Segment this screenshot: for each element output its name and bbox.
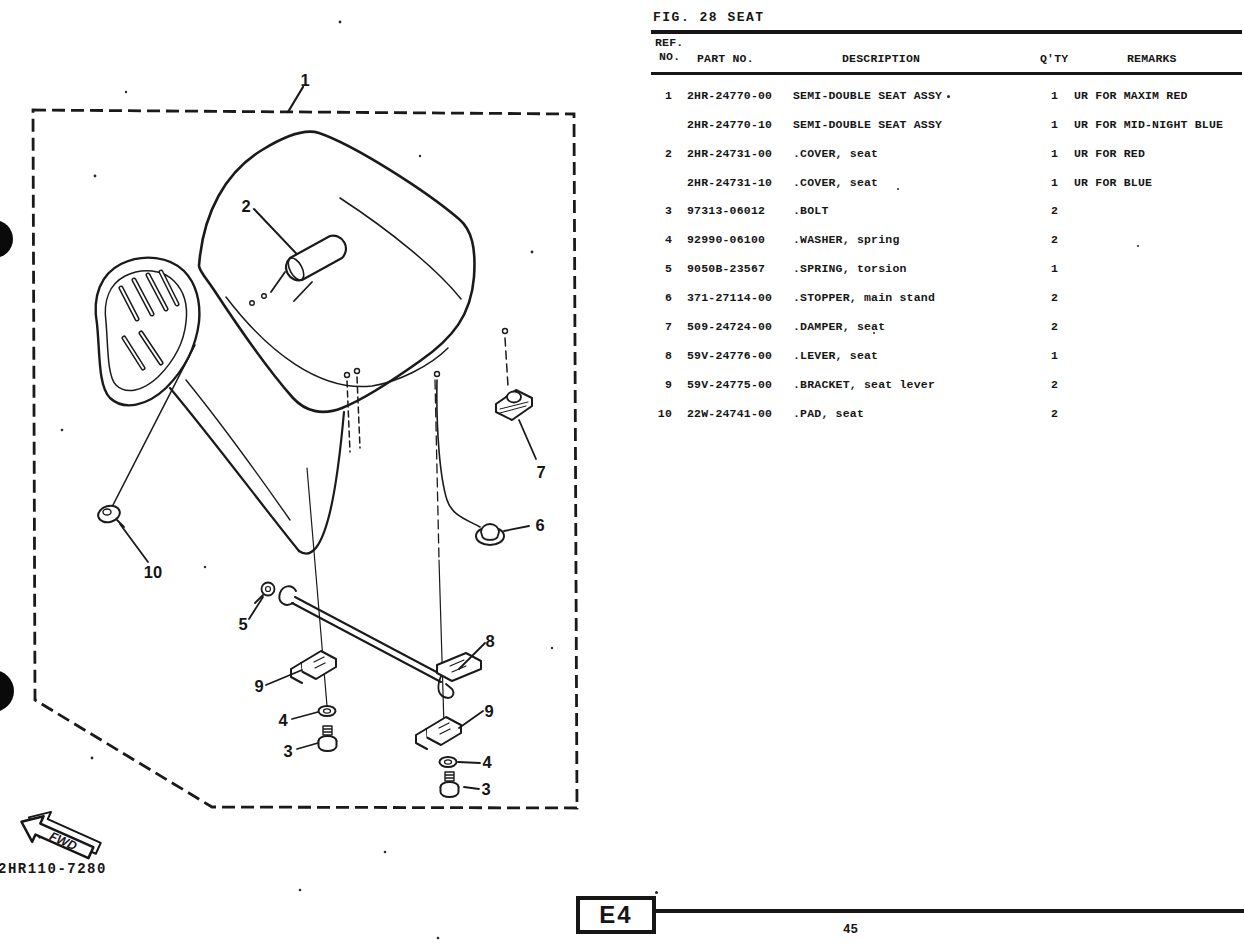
table-row: 4 92990-06100 .WASHER, spring 2 xyxy=(0,233,1244,247)
callout-9-left: 9 xyxy=(254,677,263,695)
cell-ref: 6 xyxy=(650,291,672,304)
table-row: 7 509-24724-00 .DAMPER, seat 2 xyxy=(0,320,1244,334)
callout-9-right: 9 xyxy=(484,702,493,720)
cell-part-no: 2HR-24770-10 xyxy=(687,118,772,131)
cell-qty: 2 xyxy=(1040,320,1058,333)
cell-ref: 10 xyxy=(650,407,672,420)
cell-part-no: 97313-06012 xyxy=(687,204,765,217)
cell-part-no: 59V-24775-00 xyxy=(687,378,772,391)
exploded-diagram: 1 2 7 6 10 5 8 9 4 3 9 4 3 FWD xyxy=(0,0,640,947)
cell-ref: 2 xyxy=(650,147,672,160)
table-top-rule xyxy=(651,30,1242,34)
col-header-part-no: PART NO. xyxy=(697,52,754,65)
cell-part-no: 92990-06100 xyxy=(687,233,765,246)
cell-description: .PAD, seat xyxy=(793,407,864,420)
table-row: 5 9050B-23567 .SPRING, torsion 1 xyxy=(0,262,1244,276)
cell-description: .COVER, seat xyxy=(793,176,878,189)
cell-part-no: 2HR-24731-00 xyxy=(687,147,772,160)
callout-3-right: 3 xyxy=(481,780,490,798)
col-header-description: DESCRIPTION xyxy=(842,52,920,65)
cell-ref: 7 xyxy=(650,320,672,333)
callout-7: 7 xyxy=(536,463,545,481)
cell-part-no: 59V-24776-00 xyxy=(687,349,772,362)
cell-description: .STOPPER, main stand xyxy=(793,291,935,304)
scan-speck xyxy=(873,332,875,334)
cell-description: .DAMPER, seat xyxy=(793,320,885,333)
callout-4-right: 4 xyxy=(482,753,492,771)
cell-qty: 1 xyxy=(1040,349,1058,362)
table-row: 10 22W-24741-00 .PAD, seat 2 xyxy=(0,407,1244,421)
cell-part-no: 2HR-24770-00 xyxy=(687,89,772,102)
table-row: 2HR-24770-10 SEMI-DOUBLE SEAT ASSY 1 UR … xyxy=(0,118,1244,132)
table-row: 3 97313-06012 .BOLT 2 xyxy=(0,204,1244,218)
drawing-number: 2HR110-7280 xyxy=(0,861,107,877)
cell-description: .BRACKET, seat lever xyxy=(793,378,935,391)
callout-10: 10 xyxy=(144,563,162,581)
cell-ref: 3 xyxy=(650,204,672,217)
table-header-rule xyxy=(651,72,1242,75)
cell-remarks: UR FOR BLUE xyxy=(1074,176,1152,189)
section-code-box: E4 xyxy=(576,896,656,934)
scan-speck xyxy=(897,188,899,190)
cell-qty: 2 xyxy=(1040,291,1058,304)
cell-ref: 9 xyxy=(650,378,672,391)
footer-rule xyxy=(656,909,1244,913)
cell-remarks: UR FOR MID-NIGHT BLUE xyxy=(1074,118,1223,131)
cell-ref: 1 xyxy=(650,89,672,102)
cell-description: .WASHER, spring xyxy=(793,233,900,246)
cell-ref: 8 xyxy=(650,349,672,362)
table-row: 1 2HR-24770-00 SEMI-DOUBLE SEAT ASSY 1 U… xyxy=(0,89,1244,103)
cell-description: .COVER, seat xyxy=(793,147,878,160)
callout-8: 8 xyxy=(485,632,494,650)
cell-description: SEMI-DOUBLE SEAT ASSY xyxy=(793,118,942,131)
figure-title: FIG. 28 SEAT xyxy=(653,10,765,25)
cell-part-no: 2HR-24731-10 xyxy=(687,176,772,189)
seat-line-art xyxy=(96,87,536,797)
binder-hole-mark-bottom xyxy=(0,670,14,712)
cell-part-no: 22W-24741-00 xyxy=(687,407,772,420)
table-row: 6 371-27114-00 .STOPPER, main stand 2 xyxy=(0,291,1244,305)
cell-qty: 1 xyxy=(1040,176,1058,189)
scan-speck xyxy=(947,95,950,98)
cell-qty: 1 xyxy=(1040,262,1058,275)
cell-description: .LEVER, seat xyxy=(793,349,878,362)
col-header-remarks: REMARKS xyxy=(1127,52,1177,65)
cell-description: .SPRING, torsion xyxy=(793,262,907,275)
callout-3-left: 3 xyxy=(283,742,292,760)
parts-catalog-page: 1 2 7 6 10 5 8 9 4 3 9 4 3 FWD xyxy=(0,0,1244,947)
cell-qty: 2 xyxy=(1040,204,1058,217)
col-header-qty: Q'TY xyxy=(1040,52,1068,65)
callout-1: 1 xyxy=(300,71,309,89)
table-row: 2 2HR-24731-00 .COVER, seat 1 UR FOR RED xyxy=(0,147,1244,161)
cell-qty: 2 xyxy=(1040,378,1058,391)
callout-4-left: 4 xyxy=(278,711,288,729)
scan-speck xyxy=(655,891,658,894)
cell-part-no: 509-24724-00 xyxy=(687,320,772,333)
callout-5: 5 xyxy=(238,615,247,633)
col-header-ref-line2: NO. xyxy=(659,50,680,63)
cell-remarks: UR FOR RED xyxy=(1074,147,1145,160)
table-row: 8 59V-24776-00 .LEVER, seat 1 xyxy=(0,349,1244,363)
table-row: 9 59V-24775-00 .BRACKET, seat lever 2 xyxy=(0,378,1244,392)
col-header-ref-line1: REF. xyxy=(655,36,683,49)
cell-remarks: UR FOR MAXIM RED xyxy=(1074,89,1188,102)
cell-description: .BOLT xyxy=(793,204,829,217)
cell-qty: 1 xyxy=(1040,89,1058,102)
cell-qty: 1 xyxy=(1040,118,1058,131)
table-row: 2HR-24731-10 .COVER, seat 1 UR FOR BLUE xyxy=(0,176,1244,190)
cell-ref: 4 xyxy=(650,233,672,246)
cell-part-no: 9050B-23567 xyxy=(687,262,765,275)
callout-6: 6 xyxy=(535,516,544,534)
page-number: 45 xyxy=(843,923,858,937)
scan-speck xyxy=(1137,245,1139,247)
cell-qty: 1 xyxy=(1040,147,1058,160)
cell-qty: 2 xyxy=(1040,407,1058,420)
cell-ref: 5 xyxy=(650,262,672,275)
cell-description: SEMI-DOUBLE SEAT ASSY xyxy=(793,89,942,102)
fwd-arrow-icon: FWD xyxy=(16,803,104,868)
section-code: E4 xyxy=(599,901,632,929)
cell-part-no: 371-27114-00 xyxy=(687,291,772,304)
cell-qty: 2 xyxy=(1040,233,1058,246)
